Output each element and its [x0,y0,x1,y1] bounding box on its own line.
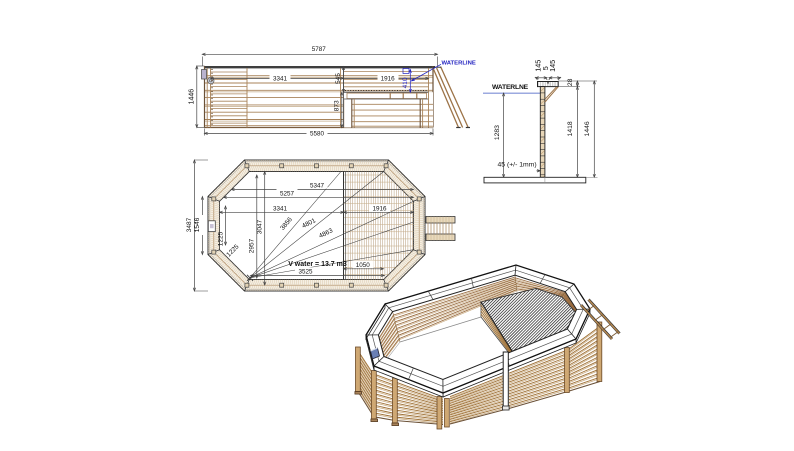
svg-text:873: 873 [333,100,340,111]
svg-text:1916: 1916 [372,206,387,213]
svg-text:1546: 1546 [194,217,201,232]
svg-text:5257: 5257 [280,190,295,197]
svg-text:1050: 1050 [356,262,371,269]
svg-text:28: 28 [567,78,574,86]
svg-text:1446: 1446 [584,121,591,136]
svg-text:1916: 1916 [381,76,396,83]
svg-text:45 (+/- 1mm): 45 (+/- 1mm) [498,162,537,169]
svg-text:145: 145 [548,60,557,72]
svg-text:1446: 1446 [188,89,195,105]
svg-text:1283: 1283 [494,125,501,140]
svg-text:V water = 13.7 m3: V water = 13.7 m3 [288,261,347,268]
svg-text:2957: 2957 [248,238,255,253]
svg-text:1225: 1225 [217,231,224,246]
svg-text:410: 410 [402,77,409,88]
svg-text:5580: 5580 [310,131,325,138]
svg-text:WATERLNE: WATERLNE [492,84,529,91]
svg-text:545: 545 [335,73,342,84]
svg-text:5787: 5787 [312,46,327,53]
svg-text:3047: 3047 [257,219,264,234]
svg-text:1418: 1418 [567,121,574,136]
svg-text:3341: 3341 [273,206,288,213]
svg-text:3487: 3487 [186,217,193,232]
svg-text:3341: 3341 [273,76,288,83]
svg-text:3525: 3525 [298,269,313,276]
svg-text:WATERLINE: WATERLINE [442,61,476,67]
svg-text:5347: 5347 [310,182,325,189]
